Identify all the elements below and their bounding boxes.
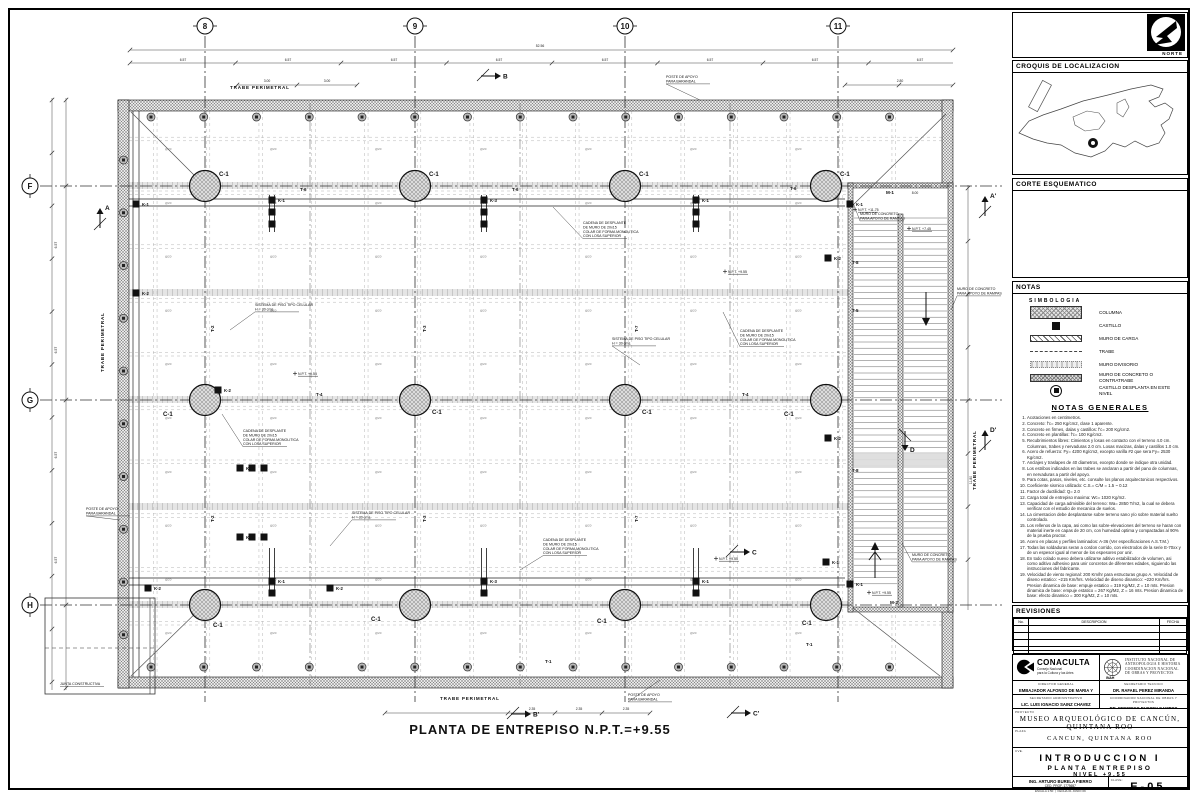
annotation-note: SISTEMA DE PISO TIPO CELULARH = 30 cms. [330,511,410,546]
section-marker-C': C' [727,706,760,718]
legend-item: CASTILLO [1013,319,1187,332]
annotation-text: JUNTA CONSTRUCTIVA [60,682,101,686]
dimension-label: 52.56 [536,44,545,48]
grid-bubble-H: H [22,593,38,617]
annotation-text: CADENA DE DESPLANTE [583,221,627,225]
castillo-desplanta-marker [253,113,261,121]
annotation-text: CON LOSA SUPERIOR [543,551,582,555]
general-note: Concreto: f'c= 250 Kg/cm2, clase 1 apare… [1027,421,1183,426]
castillo-desplanta-marker [569,663,577,671]
inah-abbr: INAH [1106,676,1114,680]
castillo-label: K-1 [246,466,254,471]
rebar-mark: @20 [165,255,172,259]
title-block-bottom: ING. ARTURO BURELA FIERRO CED. PROF. 177… [1013,777,1187,789]
general-notes-list: Acotaciones en centimetros.Concreto: f'c… [1017,415,1183,598]
role-title: SECRETARIO TECNICO [1100,682,1187,686]
rebar-mark: @20 [375,147,382,151]
castillo-desplanta-marker [569,113,577,121]
dimension-label: 6.57 [707,58,714,62]
section-marker-label: D [910,447,915,454]
dimension-label: 6.57 [285,58,292,62]
castillo-label: K-1 [246,535,254,540]
dimension-label: 2.80 [897,79,904,83]
section-marker-B: B [477,69,508,81]
rebar-mark: @20 [375,631,382,635]
castillo-marker: K-1 [847,581,864,588]
legend-item: COLUMNA [1013,306,1187,319]
rebar-mark: @20 [585,524,592,528]
castillo-desplanta-marker [727,663,735,671]
annotation-text: SISTEMA DE PISO TIPO CELULAR [255,303,313,307]
castillo-desplanta-marker [253,663,261,671]
simbologia-title: SIMBOLOGIA [1029,298,1187,304]
general-note: Para cotas, pasos, niveles, etc. consult… [1027,477,1183,482]
dimension-label: 6.57 [54,557,58,564]
castillo-desplanta-marker [516,113,524,121]
castillo-label: K-1 [856,582,864,587]
rebar-mark: @20 [480,524,487,528]
castillo-label: K-3 [490,579,498,584]
annotation-text: H = 30 cms. [352,515,371,519]
rebar-mark: @20 [165,362,172,366]
grid-bubble-G: G [22,388,38,412]
annotation-text: DE MURO DE 20x15 [740,333,774,337]
beam-label: T-4 [316,392,323,397]
beam-label: T-7 [634,515,639,522]
castillo-label: K-1 [702,579,710,584]
annotation-note: CADENA DE DESPLANTEDE MURO DE 20x15COLAR… [553,207,639,239]
section-marker-A': A' [979,193,997,218]
castillo-label: K-2 [142,291,150,296]
section-marker-D': D' [979,427,997,452]
castillo-desplanta-marker [147,113,155,121]
revisions-header: FECHA [1160,619,1187,626]
annotation-text: SISTEMA DE PISO TIPO CELULAR [612,337,670,341]
castillo-desplanta-marker [833,113,841,121]
title-block: CONACULTA Consejo Nacional para la Cultu… [1012,654,1188,788]
general-note: Capacidad de carga admisible del terreno… [1027,501,1183,511]
castillo-desplanta-marker [120,473,128,481]
column-label: C-1 [642,410,652,416]
general-note: Recubrimientos libres: Cimientos y losas… [1027,438,1183,448]
annotation-text: SISTEMA DE PISO TIPO CELULAR [352,511,410,515]
muro-divisorio-symbol-icon [1030,361,1082,368]
scale-date-row: ESCALA 1:50 | FECHA 01 JUNIO 09 [1013,789,1108,793]
general-note: Coeficiente sismico utilizado: C.S.= C/M… [1027,483,1183,488]
general-note: En todo colado nuevo debera utilizarse a… [1027,556,1183,572]
revisions-empty-cell [1014,640,1029,647]
conaculta-name: CONACULTA [1037,658,1090,667]
castillo-label: K-2 [834,256,842,261]
dimension-label: 6.57 [391,58,398,62]
plaza-label: PLAZA [1015,729,1026,733]
level-mark: N.P.T. +9.55 [714,557,739,562]
castillo-desplanta-marker [675,663,683,671]
sheet-number-cell: CLAVE: E-05 [1109,777,1187,789]
rebar-mark: @20 [795,524,802,528]
annotation-note: JUNTA CONSTRUCTIVA [60,682,104,687]
plaza-name: CANCUN, QUINTANA ROO [1013,735,1187,742]
general-note: Todas las soldaduras seran a cordon corr… [1027,545,1183,555]
title-block-roles: DIRECTOR GENERALEMBAJADOR ALFONSO DE MAR… [1013,681,1187,709]
section-marker-label: C [752,550,757,557]
revisions-empty-cell [1029,633,1160,640]
plan-geometry [40,36,1002,715]
project-row: PROYECTO MUSEO ARQUEOLÓGICO DE CANCÚN, Q… [1013,709,1187,728]
title-block-logos: CONACULTA Consejo Nacional para la Cultu… [1013,655,1187,681]
castillo-desplanta-marker [464,113,472,121]
general-note: Concreto en plantillas: f'c= 100 Kg/cm2. [1027,432,1183,437]
legend-item: TRABE [1013,345,1187,358]
castillo-marker: K-3 [481,197,498,228]
rebar-mark: @20 [165,308,172,312]
level-mark-text: N.P.T. +7.45 [912,227,931,231]
annotation-note: CADENA DE DESPLANTEDE MURO DE 20x15COLAR… [520,538,599,570]
grid-bubble-8: 8 [193,18,217,34]
castillo-label: K-3 [490,198,498,203]
schematic-section-box: CORTE ESQUEMATICO [1012,178,1188,278]
rebar-mark: @20 [375,255,382,259]
general-note: Concreto en firmes, dalas y castillos: f… [1027,427,1183,432]
annotation-text: DE MURO DE 20x15 [243,433,277,437]
inah-name: INSTITUTO NACIONAL DE ANTROPOLOGIA E HIS… [1125,658,1181,676]
legend-item-label: MURO DIVISORIO [1099,362,1179,367]
rebar-mark: @20 [795,577,802,581]
castillo-label: K-1 [702,198,710,203]
title-block-role: SECRETARIO ADMINISTRATIVOLIC. LUIS IGNAC… [1013,695,1100,709]
notas-generales-title: NOTAS GENERALES [1013,403,1187,412]
castillo-desplanta-marker [358,113,366,121]
legend-item: MURO DE CONCRETO O CONTRATRABE [1013,371,1187,384]
beam-label: T-7 [634,325,639,332]
grid-bubble-label: F [28,182,33,191]
title-block-role: COORDINADOR NACIONAL DE OBRAS Y PROYECTO… [1100,695,1187,709]
section-marker-label: B [503,74,508,81]
castillo-desplanta-marker [464,663,472,671]
castillo-desplanta-marker [120,525,128,533]
castillo-desplanta-symbol-icon [1050,385,1062,397]
dimension-label: 6.57 [54,347,58,354]
section-marker-A: A [94,205,110,230]
column-label: C-1 [429,172,439,178]
author-cell: ING. ARTURO BURELA FIERRO CED. PROF. 177… [1013,777,1109,789]
column-label: C-1 [840,172,850,178]
muro-carga-symbol-icon [1030,335,1082,342]
revisions-empty-cell [1160,640,1187,647]
revisions-header: No. [1014,619,1029,626]
revisions-empty-cell [1014,633,1029,640]
column-label: C-1 [371,617,381,623]
rebar-mark: @20 [795,201,802,205]
castillo-desplanta-marker [675,113,683,121]
castillo-marker: K-1 [823,559,840,566]
revisions-empty-cell [1029,640,1160,647]
role-title: COORDINADOR NACIONAL DE OBRAS Y PROYECTO… [1100,696,1187,704]
perimeter-beam-label: TRABE PERIMETRAL [100,312,105,372]
rebar-mark: @20 [585,147,592,151]
castillo-marker: K-2 [327,585,344,592]
castillo-marker: K-1 [693,197,710,228]
section-marker-label: C' [753,711,760,718]
ramp-label: M-2 [890,600,898,605]
rebar-mark: @20 [165,524,172,528]
section-marker-label: A' [990,193,997,200]
rebar-mark: @20 [375,416,382,420]
grid-bubble-label: 10 [621,22,630,31]
annotation-text: CADENA DE DESPLANTE [543,538,587,542]
grid-bubble-label: 9 [413,22,418,31]
legend-item-label: CASTILLO [1099,323,1179,328]
annotation-text: H = 30 cms. [612,341,631,345]
castillo-desplanta-marker [780,663,788,671]
sheet-title-1: INTRODUCCION I [1013,753,1187,764]
rebar-mark: @20 [585,577,592,581]
legend-item-label: CASTILLO DESPLANTA EN ESTE NIVEL [1099,385,1179,395]
floor-plan-drawing: 891011FGH@20@20@20@20@20@20@20@20@20@20@… [0,0,1008,800]
sheet-title-2: PLANTA ENTREPISO [1013,765,1187,772]
sheet-number-label: CLAVE: [1111,778,1123,782]
croquis-title: CROQUIS DE LOCALIZACION [1013,61,1187,73]
castillo-desplanta-marker [516,663,524,671]
general-note: Los estribos indicados en las trabes se … [1027,466,1183,476]
project-label: PROYECTO [1015,710,1034,714]
legend-item-label: MURO DE CONCRETO O CONTRATRABE [1099,372,1179,382]
annotation-text: PARA APOYO DE RAMPAS [912,557,957,561]
annotation-text: PARA BARANDAL [666,79,696,83]
role-name: DR. RAFAEL PEREZ MIRANDA [1100,688,1187,693]
beam-label: T-8 [852,468,859,473]
annotation-note: CADENA DE DESPLANTEDE MURO DE 20x15COLAR… [222,414,299,447]
general-note: Acero de refuerzo: Fy= 4200 Kg/cm2, exce… [1027,449,1183,459]
section-marker-label: A [105,205,110,212]
annotation-text: COLAR DE FORMA MONOLITICA [740,338,796,342]
role-name: EMBAJADOR ALFONSO DE MARIA Y CAMPOS [1013,688,1099,696]
legend-item: CASTILLO DESPLANTA EN ESTE NIVEL [1013,384,1187,397]
castillo-marker: K-1 [847,201,864,208]
rebar-mark: @20 [795,631,802,635]
annotation-text: MURO DE CONCRETO [957,287,996,291]
rebar-mark: @20 [795,470,802,474]
dimension-label: 8.00 [912,191,919,195]
rebar-mark: @20 [375,201,382,205]
castillo-desplanta-marker [200,113,208,121]
general-note: Acotaciones en centimetros. [1027,415,1183,420]
legend-item: MURO DE CARGA [1013,332,1187,345]
rebar-mark: @20 [690,255,697,259]
rebar-mark: @20 [690,416,697,420]
beam-label: T-5 [852,308,859,313]
grid-bubble-F: F [22,174,38,198]
side-panel: NORTE CROQUIS DE LOCALIZACION CORTE ESQU… [1008,8,1192,792]
trabe-symbol-icon [1030,351,1082,352]
column-label: C-1 [802,621,812,627]
rebar-mark: @20 [690,470,697,474]
muro-concreto-symbol-icon [1030,374,1082,382]
perimeter-beam-label: TRABE PERIMETRAL [440,696,500,701]
castillo-desplanta-marker [780,113,788,121]
annotation-text: POSTE DE APOYO [86,507,118,511]
annotation-text: PARA APOYO DE RAMPAS [957,291,1002,295]
rebar-mark: @20 [795,416,802,420]
role-title: SECRETARIO ADMINISTRATIVO [1013,696,1099,700]
revisions-empty-cell [1160,626,1187,633]
castillo-label: K-1 [142,202,150,207]
annotation-text: COLAR DE FORMA MONOLITICA [583,230,639,234]
level-mark: N.P.T. +9.55 [293,372,318,377]
plan-title: PLANTA DE ENTREPISO N.P.T.=+9.55 [360,722,720,737]
conaculta-subtitle: Consejo Nacional para la Cultura y las A… [1037,668,1074,676]
grid-bubble-label: H [27,601,33,610]
author-registration: CED. PROF. 1775657 [1013,784,1108,788]
annotation-text: CADENA DE DESPLANTE [740,329,784,333]
rebar-mark: @20 [480,631,487,635]
rebar-mark: @20 [795,147,802,151]
north-arrow-icon [1147,14,1185,51]
castillo-desplanta-marker [727,113,735,121]
castillo-marker: K-2 [215,387,232,394]
castillo-desplanta-marker [120,420,128,428]
beam-label: T-2 [210,515,215,522]
conaculta-logo-icon [1016,658,1034,676]
rebar-mark: @20 [690,631,697,635]
annotation-text: H = 30 cms. [255,307,274,311]
rebar-mark: @20 [375,362,382,366]
column-label: C-1 [219,172,229,178]
annotation-note: SISTEMA DE PISO TIPO CELULARH = 30 cms. [612,337,670,365]
revisions-empty-cell [1029,647,1160,654]
general-note: Anclajes y traslapes de 40 diametros, ex… [1027,460,1183,465]
castillo-desplanta-marker [305,663,313,671]
rebar-mark: @20 [585,362,592,366]
general-note: Los rellenos de la capa, asi como las so… [1027,523,1183,539]
castillo-marker: K-1 [237,465,268,472]
annotation-text: DE MURO DE 20x15 [583,225,617,229]
role-name: LIC. LUIS IGNACIO SAINZ CHAVEZ [1013,702,1099,707]
rebar-mark: @20 [270,255,277,259]
annotation-note: CADENA DE DESPLANTEDE MURO DE 20x15COLAR… [723,312,796,347]
column-label: C-1 [597,619,607,625]
level-mark-text: N.P.T. +9.55 [872,591,891,595]
level-mark: N.P.T. +9.55 [723,270,748,275]
rebar-mark: @20 [165,147,172,151]
rebar-mark: @20 [690,362,697,366]
rebar-mark: @20 [480,308,487,312]
revisions-empty-cell [1014,626,1029,633]
column-label: C-1 [639,172,649,178]
north-arrow-box: NORTE [1012,12,1188,58]
castillo-symbol-icon [1052,322,1060,330]
beam-label: T-8 [852,260,859,265]
rebar-mark: @20 [690,147,697,151]
legend-item-label: TRABE [1099,349,1179,354]
croquis-map-svg [1013,73,1185,171]
beam-label: T-1 [545,659,552,664]
castillo-desplanta-marker [120,631,128,639]
rebar-mark: @20 [270,362,277,366]
annotation-text: COLAR DE FORMA MONOLITICA [243,438,299,442]
rebar-mark: @20 [480,255,487,259]
castillo-label: K-2 [336,586,344,591]
dimension-label: 3.00 [264,79,271,83]
castillo-desplanta-marker [622,663,630,671]
castillo-desplanta-marker [622,113,630,121]
beam-label: T-6 [300,187,307,192]
castillo-marker: K-2 [825,435,842,442]
revisions-empty-cell [1014,647,1029,654]
dimension-label: 6.57 [602,58,609,62]
rebar-mark: @20 [585,416,592,420]
grid-bubble-11: 11 [826,18,850,34]
beam-label: T-6 [790,186,797,191]
rebar-mark: @20 [165,201,172,205]
beam-label: T-3 [422,515,427,522]
rebar-mark: @20 [585,201,592,205]
castillo-label: K-1 [278,198,286,203]
general-note: Factor de ductilidad: Q= 2.0 [1027,489,1183,494]
legend-item-label: MURO DE CARGA [1099,336,1179,341]
rebar-mark: @20 [270,524,277,528]
rebar-mark: @20 [690,308,697,312]
annotation-text: COLAR DE FORMA MONOLITICA [543,547,599,551]
general-note: Velocidad de viento regional: 200 Km/hr … [1027,572,1183,598]
rebar-mark: @20 [165,631,172,635]
castillo-desplanta-marker [411,113,419,121]
grid-bubble-9: 9 [403,18,427,34]
castillo-desplanta-marker [305,113,313,121]
castillo-desplanta-marker [120,262,128,270]
beam-label: T-3 [422,325,427,332]
rebar-mark: @20 [165,577,172,581]
dimension-label: 2.35 [576,707,583,711]
sheet-title-row: CVE. INTRODUCCION I PLANTA ENTREPISO NIV… [1013,748,1187,777]
inah-logo-icon [1103,658,1122,677]
rebar-mark: @20 [795,255,802,259]
annotation-text: POSTE DE APOYO [666,75,698,79]
annotation-text: PARA APOYO DE RAMPAS [860,216,905,220]
rebar-mark: @20 [690,524,697,528]
dimension-label: 6.57 [917,58,924,62]
corte-title: CORTE ESQUEMATICO [1013,179,1187,191]
castillo-desplanta-marker [120,367,128,375]
rebar-mark: @20 [375,308,382,312]
column-label: C-1 [784,412,794,418]
inah-cell: INAH INSTITUTO NACIONAL DE ANTROPOLOGIA … [1100,655,1187,680]
legend-item: MURO DIVISORIO [1013,358,1187,371]
sheet-number: E-05 [1109,781,1187,793]
dimension-label: 2.35 [529,707,536,711]
castillo-desplanta-marker [120,578,128,586]
rebar-mark: @20 [270,470,277,474]
annotation-text: MURO DE CONCRETO [912,553,951,557]
grid-bubble-10: 10 [613,18,637,34]
dimension-label: 6.57 [496,58,503,62]
castillo-label: K-2 [224,388,232,393]
dimension-label: 6.57 [54,242,58,249]
castillo-marker: K-1 [237,534,268,541]
rebar-mark: @20 [585,631,592,635]
rebar-mark: @20 [270,147,277,151]
rebar-mark: @20 [585,470,592,474]
section-marker-label: B' [533,712,540,719]
annotation-text: POSTE DE APOYO [628,693,660,697]
rebar-mark: @20 [795,308,802,312]
dimension-label: 3.00 [324,79,331,83]
annotation-text: CON LOSA SUPERIOR [243,442,282,446]
grid-bubble-label: G [27,396,33,405]
annotation-text: CADENA DE DESPLANTE [243,429,287,433]
castillo-desplanta-marker [200,663,208,671]
rebar-mark: @20 [585,308,592,312]
